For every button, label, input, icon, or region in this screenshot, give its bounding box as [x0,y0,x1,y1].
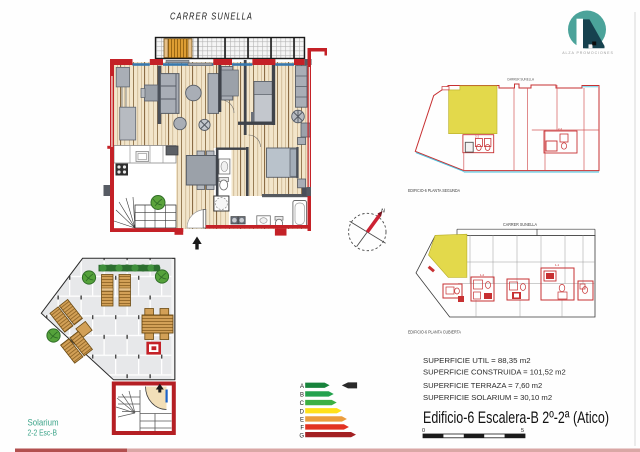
svg-text:G: G [299,433,304,439]
svg-text:1-1: 1-1 [555,263,560,267]
svg-text:ALZA PROMOCIONES: ALZA PROMOCIONES [562,51,614,55]
svg-text:C: C [300,401,305,407]
svg-text:Solarium: Solarium [28,418,59,428]
svg-text:SUPERFICIE TERRAZA = 7,60 m2: SUPERFICIE TERRAZA = 7,60 m2 [423,383,542,390]
svg-text:1-2: 1-2 [480,273,485,277]
svg-text:B: B [300,393,304,399]
svg-text:SUPERFICIE UTIL = 88,35 m2: SUPERFICIE UTIL = 88,35 m2 [423,358,531,365]
svg-text:2-2: 2-2 [475,135,479,139]
svg-text:0: 0 [422,428,425,434]
svg-text:CARRER SUNELLA: CARRER SUNELLA [507,78,534,82]
svg-text:D: D [300,409,305,415]
svg-text:E: E [300,418,304,424]
svg-text:EDIFICIO-6 PLANTA CUBIERTA: EDIFICIO-6 PLANTA CUBIERTA [408,330,461,335]
svg-text:Edificio-6 Escalera-B 2º-2ª (A: Edificio-6 Escalera-B 2º-2ª (Atico) [423,408,609,427]
svg-text:5: 5 [521,428,524,434]
svg-text:SUPERFICIE CONSTRUIDA = 101,52: SUPERFICIE CONSTRUIDA = 101,52 m2 [423,370,566,377]
svg-text:EDIFICIO-6 PLANTA SEGUNDA: EDIFICIO-6 PLANTA SEGUNDA [408,188,460,193]
svg-text:CARRER SUNELLA: CARRER SUNELLA [503,222,537,227]
svg-text:CARRER SUNELLA: CARRER SUNELLA [170,11,253,23]
svg-text:SUPERFICIE SOLARIUM = 30,10 m2: SUPERFICIE SOLARIUM = 30,10 m2 [423,395,552,402]
svg-text:A: A [300,384,304,390]
svg-text:2-2 Esc-B: 2-2 Esc-B [28,428,58,438]
svg-text:2-2: 2-2 [558,127,563,131]
svg-text:N: N [381,209,385,215]
svg-text:F: F [300,426,304,432]
